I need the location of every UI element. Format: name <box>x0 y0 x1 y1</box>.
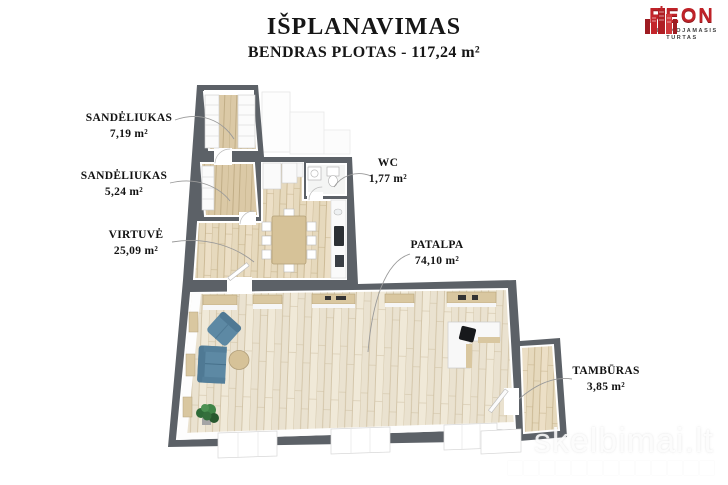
floorplan-page: IŠPLANAVIMAS BENDRAS PLOTAS - 117,24 m² … <box>0 0 728 485</box>
reon-logo: REON NEKILNOJAMASIS TURTAS <box>641 6 723 42</box>
kitchen-sink <box>334 209 342 215</box>
watermark: skelbimai.lt <box>508 424 714 475</box>
window-sill-3 <box>183 397 192 417</box>
room-floors <box>177 92 559 439</box>
toilet <box>327 167 339 176</box>
page-subtitle: BENDRAS PLOTAS - 117,24 m² <box>0 43 728 63</box>
watermark-text: skelbimai.lt <box>508 424 714 458</box>
window-sill-1 <box>189 312 198 332</box>
cooktop <box>334 226 344 246</box>
background-structures <box>262 92 350 154</box>
sofa <box>197 345 227 383</box>
room-label-storage2: SANDĖLIUKAS 5,24 m² <box>81 170 167 199</box>
page-title: IŠPLANAVIMAS <box>0 14 728 40</box>
room-label-tambour: TAMBŪRAS 3,85 m² <box>572 365 639 394</box>
room-tambour-floor <box>521 345 559 433</box>
coffee-table <box>229 351 249 370</box>
kitchen-counter <box>331 200 346 278</box>
header: IŠPLANAVIMAS BENDRAS PLOTAS - 117,24 m² <box>0 14 728 63</box>
watermark-squares <box>508 461 714 475</box>
room-label-storage1: SANDĖLIUKAS 7,19 m² <box>86 112 172 141</box>
room-label-main: PATALPA 74,10 m² <box>411 239 464 268</box>
buildings-icon <box>641 6 679 36</box>
room-label-kitchen: VIRTUVĖ 25,09 m² <box>109 229 164 258</box>
oven <box>335 255 344 267</box>
room-label-wc: WC 1,77 m² <box>369 157 407 186</box>
washing-machine <box>308 167 321 180</box>
window-sill-2 <box>186 354 195 376</box>
